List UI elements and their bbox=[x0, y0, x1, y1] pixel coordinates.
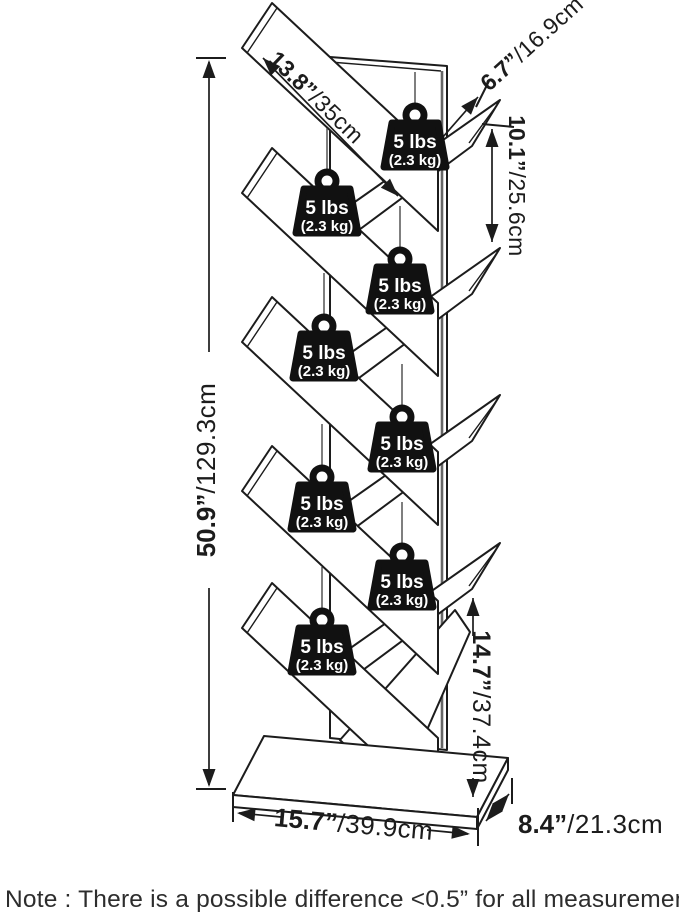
label-bottom-gap: 14.7”/37.4cm bbox=[467, 630, 495, 784]
label-shelf-depth: 6.7”/16.9cm bbox=[475, 0, 588, 96]
dimension-total-height: 50.9”/129.3cm bbox=[191, 58, 226, 789]
svg-text:(2.3 kg): (2.3 kg) bbox=[389, 152, 442, 169]
dimension-bottom-gap: 14.7”/37.4cm bbox=[467, 598, 496, 797]
label-base-depth: 8.4”/21.3cm bbox=[518, 809, 663, 839]
svg-text:5 lbs: 5 lbs bbox=[305, 198, 348, 219]
svg-text:5 lbs: 5 lbs bbox=[380, 572, 423, 593]
svg-text:5 lbs: 5 lbs bbox=[380, 434, 423, 455]
svg-text:5 lbs: 5 lbs bbox=[302, 343, 345, 364]
svg-text:(2.3 kg): (2.3 kg) bbox=[376, 592, 429, 609]
svg-text:(2.3 kg): (2.3 kg) bbox=[298, 363, 351, 380]
svg-text:5 lbs: 5 lbs bbox=[378, 276, 421, 297]
dimension-base-depth: 8.4”/21.3cm bbox=[486, 778, 663, 839]
svg-text:(2.3 kg): (2.3 kg) bbox=[301, 218, 354, 235]
svg-text:5 lbs: 5 lbs bbox=[393, 132, 436, 153]
svg-text:5 lbs: 5 lbs bbox=[300, 637, 343, 658]
svg-text:(2.3 kg): (2.3 kg) bbox=[374, 296, 427, 313]
label-total-height: 50.9”/129.3cm bbox=[191, 383, 221, 558]
svg-text:5 lbs: 5 lbs bbox=[300, 494, 343, 515]
svg-text:(2.3 kg): (2.3 kg) bbox=[296, 657, 349, 674]
bookshelf-line-drawing: 50.9”/129.3cm 13.8”/35cm 6.7”/16.9cm 10.… bbox=[0, 0, 679, 880]
svg-text:(2.3 kg): (2.3 kg) bbox=[296, 514, 349, 531]
svg-text:(2.3 kg): (2.3 kg) bbox=[376, 454, 429, 471]
dimension-diagram-page: 50.9”/129.3cm 13.8”/35cm 6.7”/16.9cm 10.… bbox=[0, 0, 679, 920]
measurement-note: Note : There is a possible difference <0… bbox=[5, 886, 677, 914]
dimension-shelf-gap: 10.1”/25.6cm bbox=[482, 115, 530, 257]
label-shelf-gap: 10.1”/25.6cm bbox=[504, 115, 530, 257]
